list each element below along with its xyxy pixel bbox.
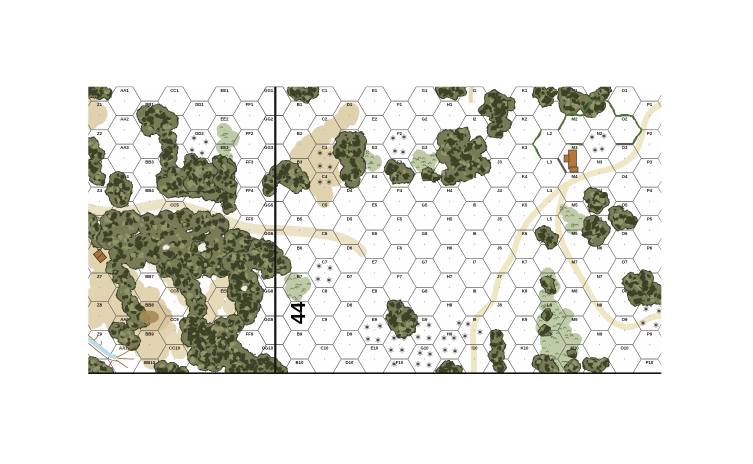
svg-text:O9: O9 — [622, 317, 628, 322]
svg-text:H9: H9 — [447, 331, 453, 336]
svg-text:L8: L8 — [547, 303, 553, 308]
svg-text:M3: M3 — [572, 145, 579, 150]
svg-text:L5: L5 — [547, 217, 553, 222]
svg-text:P6: P6 — [647, 245, 653, 250]
svg-text:BB8: BB8 — [145, 303, 154, 308]
svg-text:BB3: BB3 — [145, 159, 154, 164]
svg-text:AA1: AA1 — [120, 88, 129, 93]
svg-text:J5: J5 — [497, 217, 502, 222]
svg-text:K3: K3 — [522, 145, 528, 150]
svg-text:E2: E2 — [372, 116, 378, 121]
svg-text:I7: I7 — [473, 260, 477, 265]
svg-text:B3: B3 — [297, 159, 303, 164]
svg-text:J4: J4 — [497, 188, 502, 193]
svg-text:D9: D9 — [347, 331, 353, 336]
svg-text:F6: F6 — [397, 245, 403, 250]
svg-text:H7: H7 — [447, 274, 453, 279]
svg-text:J8: J8 — [497, 303, 502, 308]
svg-text:O7: O7 — [622, 260, 628, 265]
svg-text:C4: C4 — [322, 174, 328, 179]
svg-text:B6: B6 — [297, 245, 303, 250]
svg-text:DD2: DD2 — [195, 131, 204, 136]
svg-text:O4: O4 — [622, 174, 628, 179]
svg-text:B9: B9 — [297, 331, 303, 336]
svg-text:D4: D4 — [347, 188, 353, 193]
svg-text:GG9: GG9 — [264, 317, 274, 322]
svg-text:I5: I5 — [473, 202, 477, 207]
svg-text:DD1: DD1 — [195, 102, 204, 107]
svg-text:L3: L3 — [547, 159, 553, 164]
svg-text:M6: M6 — [572, 231, 579, 236]
svg-text:E4: E4 — [372, 174, 378, 179]
svg-text:D8: D8 — [347, 303, 353, 308]
svg-text:Z8: Z8 — [97, 303, 103, 308]
svg-text:FF5: FF5 — [246, 217, 254, 222]
svg-text:G8: G8 — [422, 288, 428, 293]
svg-text:BB4: BB4 — [145, 188, 154, 193]
svg-text:AA2: AA2 — [120, 116, 129, 121]
svg-text:G9: G9 — [422, 317, 428, 322]
svg-text:G7: G7 — [422, 260, 428, 265]
svg-text:E10: E10 — [371, 346, 379, 351]
svg-text:GG3: GG3 — [264, 145, 274, 150]
svg-text:GG5: GG5 — [264, 202, 274, 207]
svg-text:EE1: EE1 — [220, 88, 229, 93]
svg-text:BB9: BB9 — [145, 331, 154, 336]
svg-text:FF2: FF2 — [246, 131, 254, 136]
svg-text:E6: E6 — [372, 231, 378, 236]
svg-text:O6: O6 — [622, 231, 628, 236]
svg-text:CC10: CC10 — [169, 346, 181, 351]
svg-text:O2: O2 — [622, 116, 628, 121]
svg-text:EE3: EE3 — [220, 145, 229, 150]
svg-text:H8: H8 — [447, 303, 453, 308]
svg-text:G5: G5 — [422, 202, 428, 207]
svg-text:E7: E7 — [372, 260, 378, 265]
svg-text:B5: B5 — [297, 217, 303, 222]
svg-text:I2: I2 — [473, 116, 477, 121]
svg-text:K2: K2 — [522, 116, 528, 121]
svg-text:GG2: GG2 — [264, 116, 274, 121]
svg-text:Z2: Z2 — [97, 131, 103, 136]
svg-text:F7: F7 — [397, 274, 403, 279]
svg-text:H5: H5 — [447, 217, 453, 222]
svg-text:D7: D7 — [347, 274, 353, 279]
svg-text:E5: E5 — [372, 202, 378, 207]
svg-text:GG6: GG6 — [264, 231, 274, 236]
svg-text:H4: H4 — [447, 188, 453, 193]
svg-text:J3: J3 — [497, 159, 502, 164]
svg-text:P10: P10 — [646, 360, 654, 365]
svg-text:B10: B10 — [296, 360, 304, 365]
svg-text:G2: G2 — [422, 116, 428, 121]
svg-text:FF3: FF3 — [246, 159, 254, 164]
svg-text:N8: N8 — [597, 303, 603, 308]
svg-text:P5: P5 — [647, 217, 653, 222]
svg-text:B7: B7 — [297, 274, 303, 279]
svg-text:FF1: FF1 — [246, 102, 254, 107]
svg-text:G3: G3 — [422, 145, 428, 150]
svg-text:D5: D5 — [347, 217, 353, 222]
svg-text:CC1: CC1 — [170, 88, 179, 93]
svg-text:M8: M8 — [572, 288, 579, 293]
svg-text:N9: N9 — [597, 331, 603, 336]
svg-text:O1: O1 — [622, 88, 628, 93]
svg-text:P9: P9 — [647, 331, 653, 336]
svg-text:CC8: CC8 — [170, 288, 179, 293]
svg-text:E8: E8 — [372, 288, 378, 293]
svg-text:C5: C5 — [322, 202, 328, 207]
svg-text:M4: M4 — [572, 174, 579, 179]
svg-text:FF4: FF4 — [246, 188, 254, 193]
svg-text:K10: K10 — [521, 346, 529, 351]
svg-text:H6: H6 — [447, 245, 453, 250]
svg-text:G6: G6 — [422, 231, 428, 236]
svg-text:N7: N7 — [597, 274, 603, 279]
svg-text:EE2: EE2 — [220, 116, 229, 121]
svg-text:M5: M5 — [572, 202, 579, 207]
svg-text:AA3: AA3 — [120, 145, 129, 150]
svg-text:F4: F4 — [397, 188, 403, 193]
svg-text:C2: C2 — [322, 116, 328, 121]
svg-text:CC5: CC5 — [170, 202, 179, 207]
svg-text:J7: J7 — [497, 274, 502, 279]
svg-text:M9: M9 — [572, 317, 579, 322]
svg-text:Z1: Z1 — [97, 102, 103, 107]
svg-text:Z4: Z4 — [97, 188, 103, 193]
svg-text:FF9: FF9 — [246, 331, 254, 336]
svg-text:D10: D10 — [346, 360, 354, 365]
svg-text:G1: G1 — [422, 88, 428, 93]
svg-text:GG1: GG1 — [264, 88, 274, 93]
svg-text:F5: F5 — [397, 217, 403, 222]
svg-text:J6: J6 — [497, 245, 502, 250]
svg-text:K7: K7 — [522, 260, 528, 265]
svg-text:P4: P4 — [647, 188, 653, 193]
svg-text:K1: K1 — [522, 88, 528, 93]
svg-text:C1: C1 — [322, 88, 328, 93]
svg-text:L2: L2 — [547, 131, 553, 136]
svg-text:O10: O10 — [620, 346, 629, 351]
svg-text:O5: O5 — [622, 202, 628, 207]
svg-text:M7: M7 — [572, 260, 579, 265]
svg-text:K5: K5 — [522, 202, 528, 207]
svg-text:O3: O3 — [622, 145, 628, 150]
svg-text:GG8: GG8 — [264, 288, 274, 293]
svg-text:G10: G10 — [420, 346, 429, 351]
svg-text:K8: K8 — [522, 288, 528, 293]
svg-text:F10: F10 — [396, 360, 404, 365]
svg-text:P1: P1 — [647, 102, 653, 107]
svg-text:44: 44 — [288, 301, 310, 324]
svg-text:I1: I1 — [473, 88, 477, 93]
svg-text:E3: E3 — [372, 145, 378, 150]
svg-text:P3: P3 — [647, 159, 653, 164]
svg-text:C10: C10 — [321, 346, 329, 351]
svg-text:F1: F1 — [397, 102, 403, 107]
svg-text:P2: P2 — [647, 131, 653, 136]
svg-text:C3: C3 — [322, 145, 328, 150]
svg-text:E9: E9 — [372, 317, 378, 322]
svg-text:GG10: GG10 — [262, 346, 274, 351]
svg-text:D6: D6 — [347, 245, 353, 250]
svg-text:I6: I6 — [473, 231, 477, 236]
svg-text:CC9: CC9 — [170, 317, 179, 322]
svg-text:K9: K9 — [522, 317, 528, 322]
svg-text:D1: D1 — [347, 102, 353, 107]
svg-text:F2: F2 — [397, 131, 403, 136]
svg-text:K6: K6 — [522, 231, 528, 236]
svg-text:C9: C9 — [322, 317, 328, 322]
svg-text:M2: M2 — [572, 116, 579, 121]
svg-text:I10: I10 — [472, 346, 479, 351]
svg-text:C7: C7 — [322, 260, 328, 265]
svg-text:C6: C6 — [322, 231, 328, 236]
svg-text:K4: K4 — [522, 174, 528, 179]
svg-text:E1: E1 — [372, 88, 378, 93]
svg-text:B1: B1 — [297, 102, 303, 107]
svg-text:BB10: BB10 — [144, 360, 156, 365]
svg-text:C8: C8 — [322, 288, 328, 293]
svg-text:B2: B2 — [297, 131, 303, 136]
svg-text:H1: H1 — [447, 102, 453, 107]
svg-text:I9: I9 — [473, 317, 477, 322]
svg-text:L4: L4 — [547, 188, 553, 193]
svg-text:BB7: BB7 — [145, 274, 154, 279]
svg-text:Z7: Z7 — [97, 274, 103, 279]
svg-text:N3: N3 — [597, 159, 603, 164]
svg-text:I8: I8 — [473, 288, 477, 293]
